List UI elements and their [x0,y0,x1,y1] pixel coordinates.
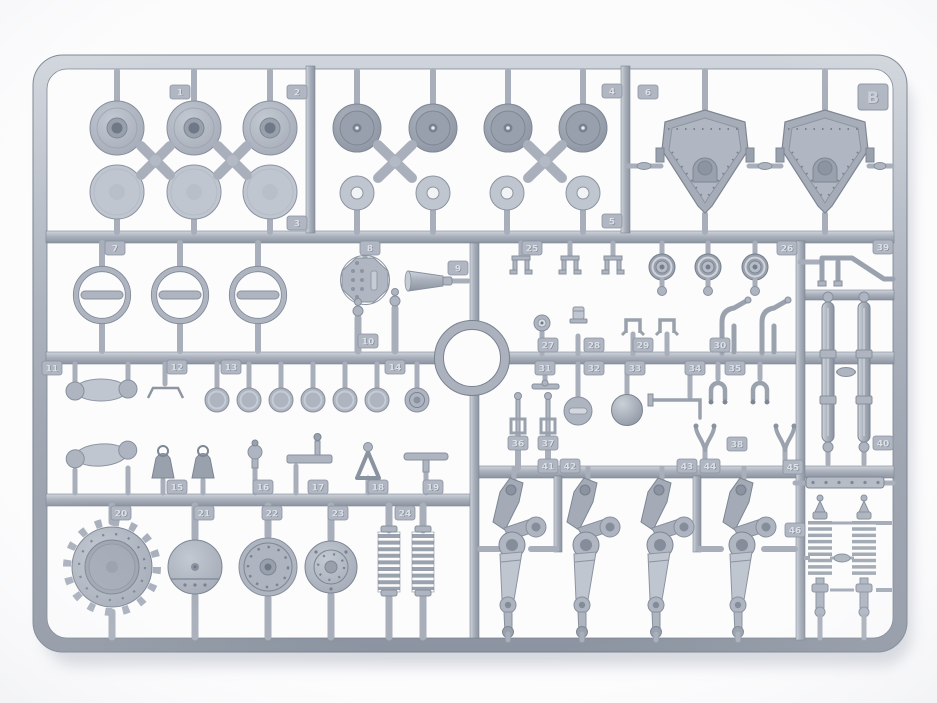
photo-vignette [0,0,937,703]
sprue-photo: B B 112233445566778899101011111212131314… [0,0,937,703]
sprue-drawing: B B 112233445566778899101011111212131314… [0,0,937,703]
